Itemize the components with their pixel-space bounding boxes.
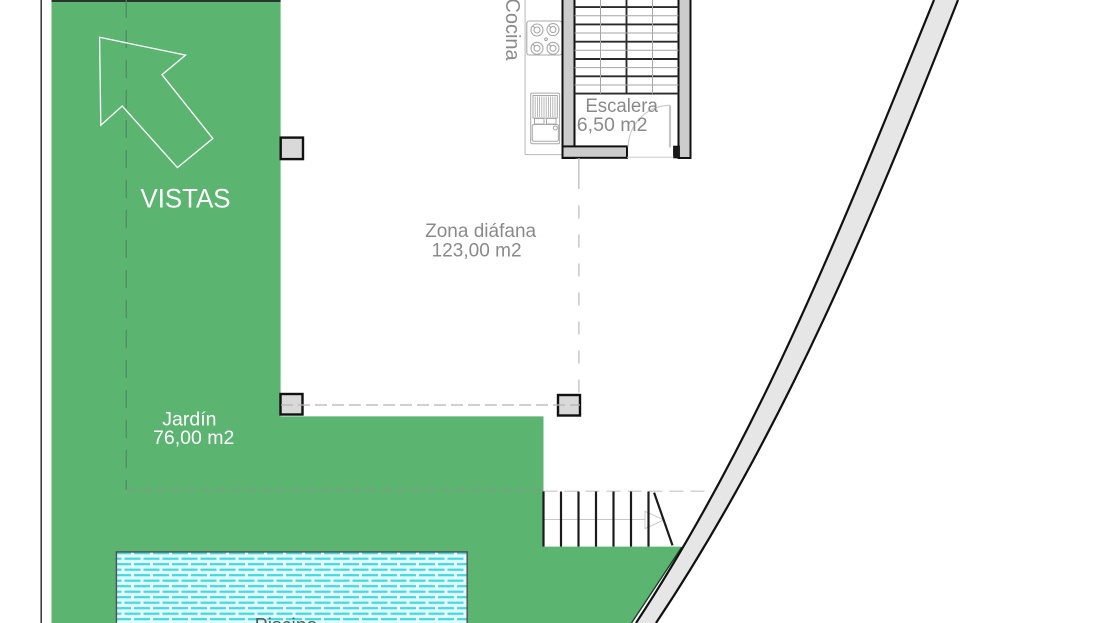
svg-text:6,50 m2: 6,50 m2 [577, 115, 648, 136]
svg-text:Cocina: Cocina [501, 0, 523, 62]
svg-text:Piscina: Piscina [255, 615, 318, 623]
svg-text:123,00 m2: 123,00 m2 [432, 240, 522, 262]
svg-text:Escalera: Escalera [585, 96, 658, 117]
svg-text:Zona diáfana: Zona diáfana [425, 220, 536, 242]
svg-text:VISTAS: VISTAS [141, 184, 231, 214]
svg-text:76,00 m2: 76,00 m2 [153, 427, 234, 449]
